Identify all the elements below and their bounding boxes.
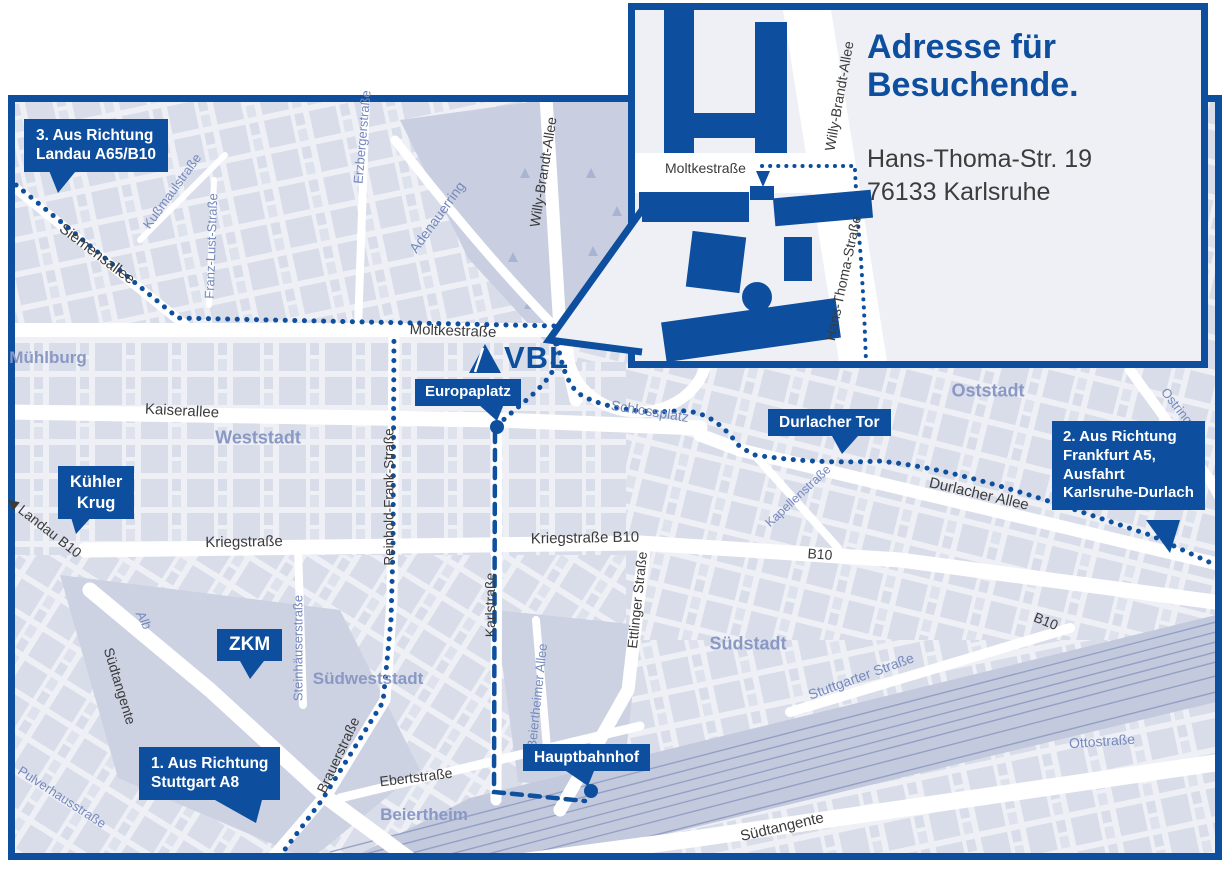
map-poster: SiemensalleeMoltkestraßeKaiseralleeKrieg… <box>0 0 1230 874</box>
inset-address-line1: Hans-Thoma-Str. 19 <box>867 143 1092 176</box>
callout-line: Kühler <box>70 472 122 493</box>
callout-line: 1. Aus Richtung <box>151 754 268 773</box>
inset-label-moltkestrasse: Moltkestraße <box>665 160 746 176</box>
callout-line: 3. Aus Richtung <box>36 126 156 145</box>
callout-line: Ausfahrt <box>1063 466 1194 485</box>
inset-address-line2: 76133 Karlsruhe <box>867 176 1092 209</box>
callout-line: 2. Aus Richtung <box>1063 428 1194 447</box>
callout-route-stuttgart: 1. Aus Richtung Stuttgart A8 <box>139 747 280 800</box>
callout-hauptbahnhof: Hauptbahnhof <box>523 744 650 771</box>
vbl-logo-text: VBL <box>504 340 569 376</box>
callout-kuehler-krug: Kühler Krug <box>58 466 134 519</box>
inset-title: Adresse für Besuchende. <box>867 28 1079 104</box>
callout-line: Europaplatz <box>425 383 511 400</box>
inset-address: Hans-Thoma-Str. 19 76133 Karlsruhe <box>867 143 1092 208</box>
europaplatz-dot <box>490 420 504 434</box>
callout-zkm: ZKM <box>217 629 282 661</box>
hauptbahnhof-dot <box>584 784 598 798</box>
inset-title-line1: Adresse für <box>867 28 1079 66</box>
vbl-triangle-icon <box>468 340 502 376</box>
callout-line: Landau A65/B10 <box>36 145 156 164</box>
vbl-logo: VBL <box>468 340 569 376</box>
inset-title-line2: Besuchende. <box>867 66 1079 104</box>
callout-line: Hauptbahnhof <box>534 749 639 766</box>
callout-line: Karlsruhe-Durlach <box>1063 484 1194 503</box>
callout-europaplatz: Europaplatz <box>415 379 521 406</box>
callout-route-frankfurt: 2. Aus Richtung Frankfurt A5, Ausfahrt K… <box>1052 421 1205 510</box>
address-inset: Moltkestraße Willy-Brandt-Allee Hans-Tho… <box>628 3 1208 368</box>
callout-line: Frankfurt A5, <box>1063 447 1194 466</box>
callout-line: Krug <box>70 493 122 514</box>
callout-line: Durlacher Tor <box>779 414 880 431</box>
callout-line: ZKM <box>229 634 270 655</box>
callout-line: Stuttgart A8 <box>151 773 268 792</box>
callout-durlacher-tor: Durlacher Tor <box>768 409 891 436</box>
callout-route-landau: 3. Aus Richtung Landau A65/B10 <box>24 119 168 172</box>
